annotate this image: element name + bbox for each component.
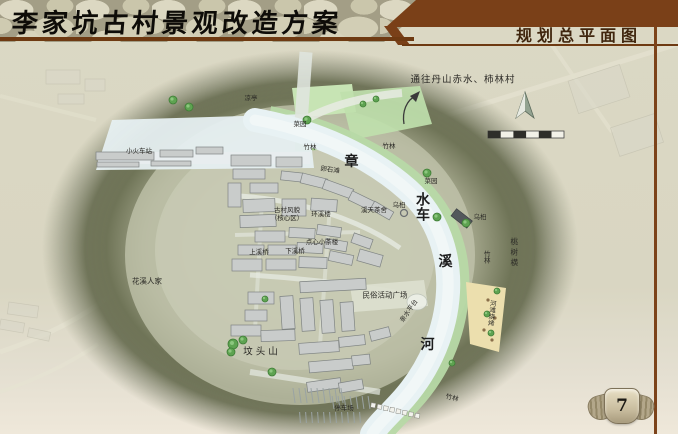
waterfront-platform [407, 294, 427, 310]
site-plan-map [0, 0, 678, 434]
north-arrow-icon [516, 92, 534, 118]
page-number-shield: 7 [604, 388, 640, 424]
slide-canvas: 通往丹山赤水、柿林村小火车站凉亭菜园竹林竹林卵石滩章溪天茶舍乌桕菜园水车乌桕溪竹… [0, 0, 678, 434]
page-number: 7 [616, 396, 628, 416]
page-number-emblem: 7 [588, 386, 654, 426]
header-brown-bar [372, 0, 678, 27]
scale-bar [488, 131, 564, 138]
section-title: 规划总平面图 [430, 27, 642, 45]
page-title: 李家坑古村景观改造方案 [10, 3, 343, 40]
right-accent-line [654, 27, 657, 434]
